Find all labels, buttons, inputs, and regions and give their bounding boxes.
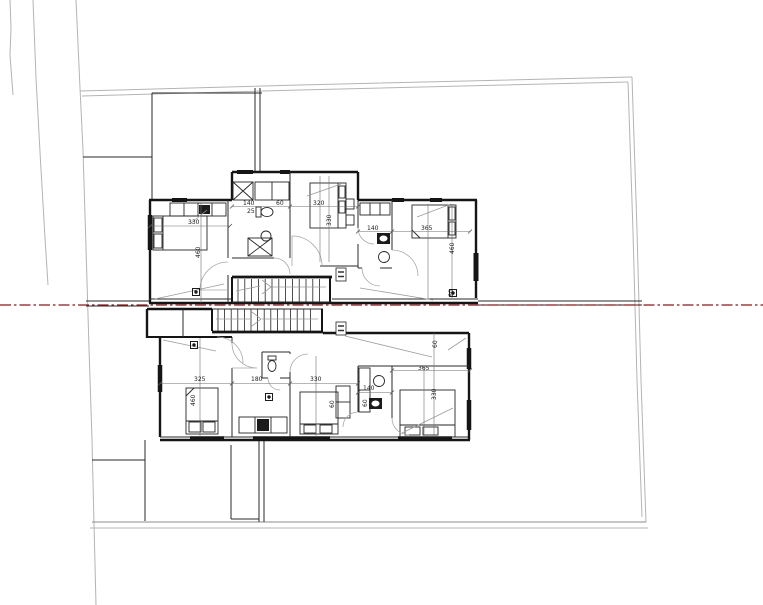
dimension-label: 325 [194, 376, 206, 383]
stair-treads [238, 279, 320, 302]
dimension-label: 25 [247, 208, 255, 215]
wardrobe-icon [170, 203, 226, 216]
dimension-label: 330 [188, 219, 200, 226]
shower-icon [248, 238, 272, 256]
toilet-icon [256, 207, 273, 217]
dimension-label: 460 [449, 242, 456, 254]
staircase-upper [232, 277, 332, 302]
bed-icon [300, 392, 338, 434]
dimension-label: 140 [363, 385, 375, 392]
dimension-label: 60 [362, 399, 369, 407]
dimension-label: 330 [431, 388, 438, 400]
leader-lines [155, 184, 451, 300]
dimension-label: 60 [432, 340, 439, 348]
dimension-label: 140 [243, 200, 255, 207]
dimension-label: 330 [310, 376, 322, 383]
dimension-label: 365 [418, 365, 430, 372]
dimension-label: 180 [251, 376, 263, 383]
point-marker-dot [267, 395, 270, 398]
cabinet-icon [360, 203, 390, 263]
dimension-label: 60 [329, 400, 336, 408]
toilet-icon [268, 356, 276, 372]
leader-lines [163, 336, 466, 433]
lower-unit [147, 309, 470, 440]
level-tag [336, 322, 346, 335]
dimension-label: 365 [421, 225, 433, 232]
dimension-label: 60 [276, 200, 284, 207]
bed-icon [412, 205, 456, 238]
upper-unit [149, 172, 478, 303]
staircase-lower [212, 309, 323, 332]
dimension-label: 140 [367, 225, 379, 232]
floorplan-drawing: 3304601402560320330140365460603254601803… [0, 0, 763, 605]
point-marker-dot [451, 291, 454, 294]
closet-icon [239, 417, 287, 433]
dimension-label: 460 [190, 394, 197, 406]
level-tag [336, 268, 346, 281]
closet-icon [233, 182, 289, 200]
dimension-label: 460 [195, 246, 202, 258]
dimension-label: 330 [326, 214, 333, 226]
floorplan-canvas: 3304601402560320330140365460603254601803… [0, 0, 763, 605]
stair-treads [218, 309, 310, 331]
point-marker-dot [192, 343, 195, 346]
dimension-label: 320 [313, 200, 325, 207]
point-marker-dot [194, 290, 197, 293]
level-tags [336, 268, 346, 335]
